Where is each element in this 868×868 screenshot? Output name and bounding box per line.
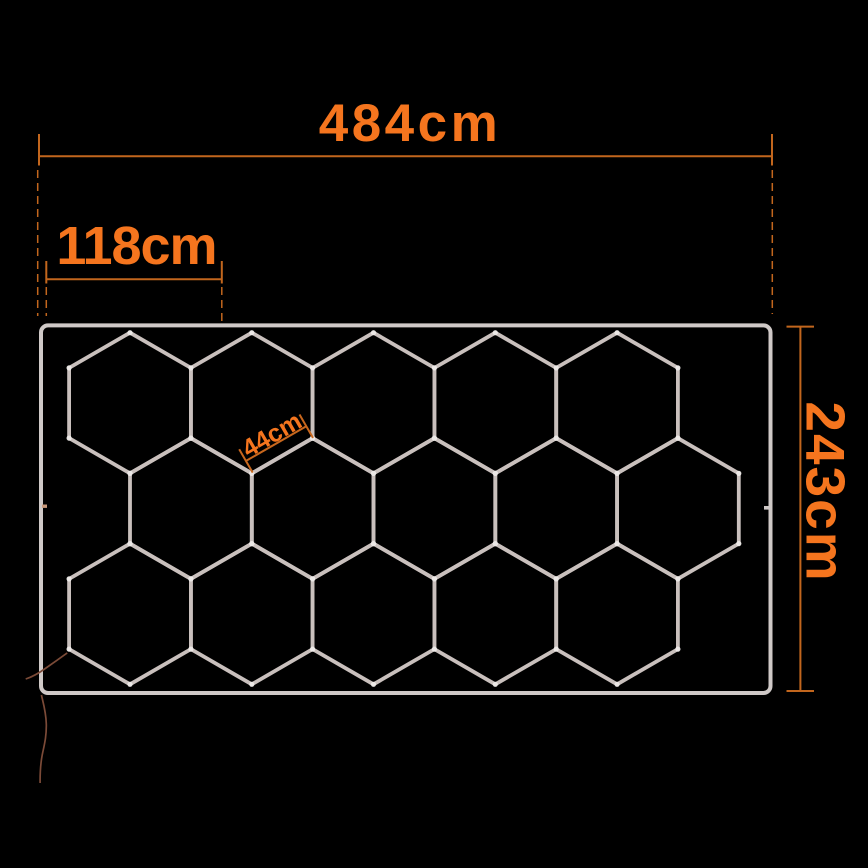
svg-text:243cm: 243cm <box>795 401 857 582</box>
svg-text:118cm: 118cm <box>56 216 216 276</box>
svg-text:484cm: 484cm <box>319 94 502 153</box>
